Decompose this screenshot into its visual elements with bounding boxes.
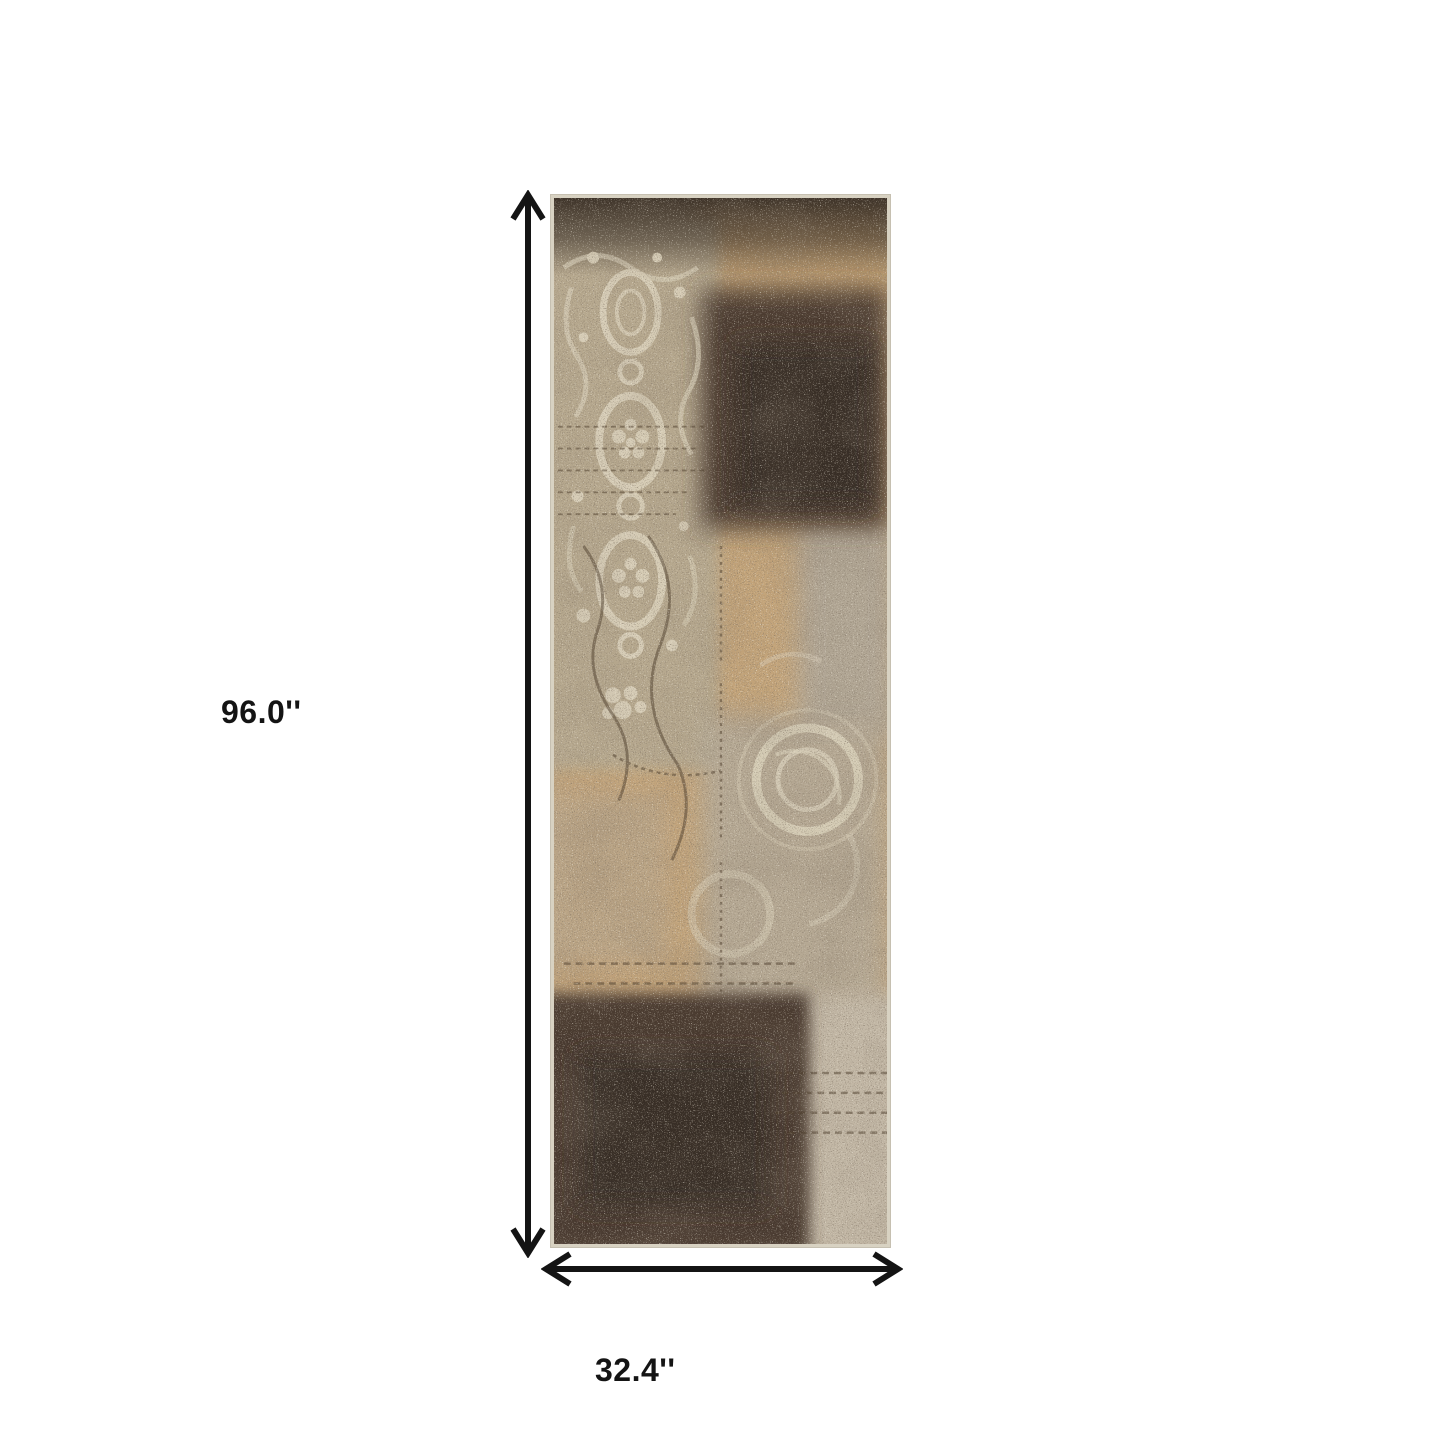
rug-light-grain-overlay: [554, 198, 887, 1244]
height-dimension-arrow: [509, 190, 547, 1258]
product-dimension-diagram: 96.0'' 32.4'': [0, 0, 1445, 1445]
rug-texture: [554, 198, 887, 1244]
width-label: 32.4'': [595, 1352, 676, 1389]
rug-canvas: [554, 198, 887, 1244]
rug-image: [551, 195, 890, 1247]
width-dimension-arrow: [541, 1250, 903, 1288]
height-label: 96.0'': [221, 694, 302, 731]
